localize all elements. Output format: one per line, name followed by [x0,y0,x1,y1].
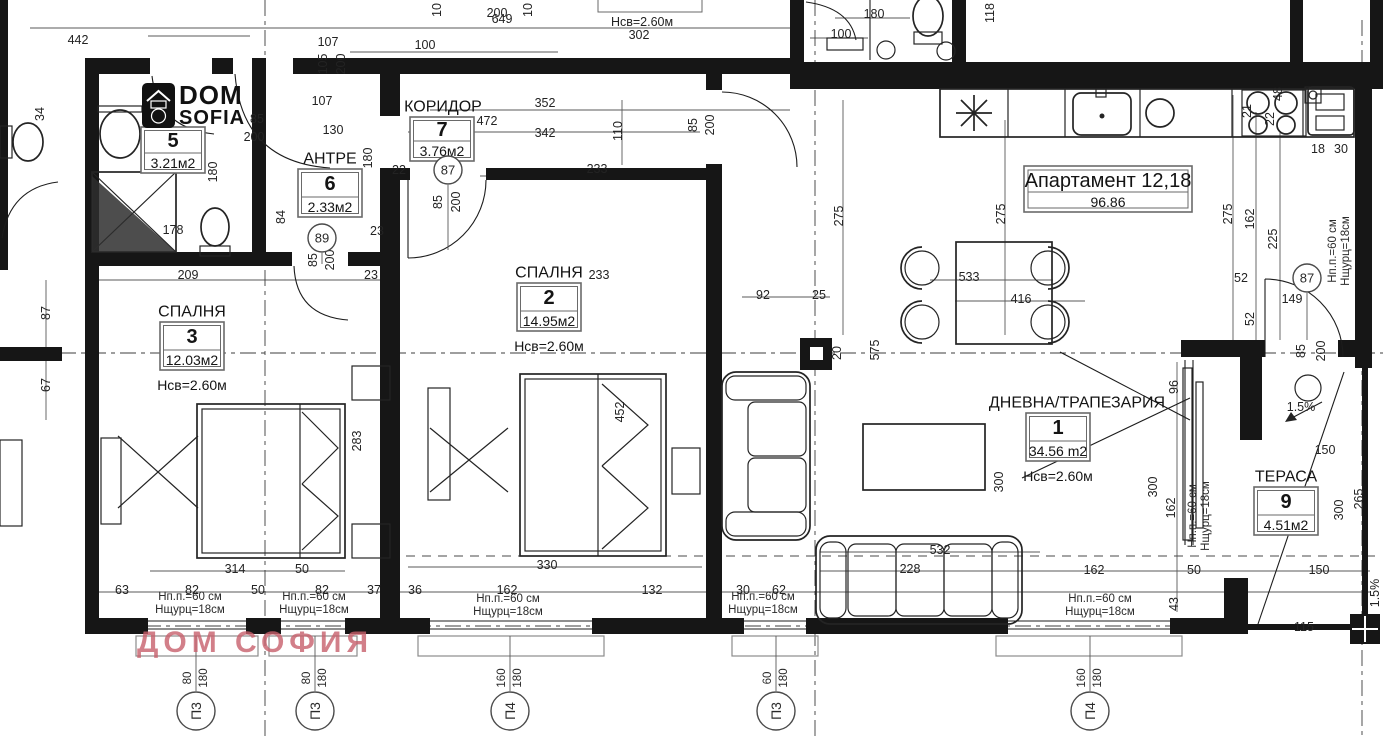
bedroom3-door-arc [294,266,348,320]
sill-label: Нп.п.=60 смНщурц=18см [1327,216,1352,286]
door-marker-number: 87 [1300,271,1314,286]
sill-label-line1: Нп.п.=60 см [731,591,795,603]
dimension-text: 84 [274,210,288,224]
dimension-text: 110 [611,121,625,141]
dimension-text: 132 [642,583,663,597]
dimension-text: 85 [306,253,320,267]
dimension-text: 200 [703,115,717,136]
dimension-text: 50 [295,562,309,576]
window-marker-label: П4 [502,702,518,720]
dimension-text: 118 [983,3,997,23]
sill-label-line2: Нщурц=18см [728,604,798,616]
dimension-text: 442 [68,33,89,47]
room-name: КОРИДОР [404,99,482,116]
wardrobe [428,388,450,500]
dimension-text: 275 [994,204,1008,225]
kitchen-counter [940,87,1354,137]
door-marker-number: 89 [315,231,329,246]
loveseat [722,372,810,540]
dimension-text: 330 [537,558,558,572]
dimension-text: 85 [686,118,700,132]
room-label-6: 62.33м2АНТРЕ [298,151,362,218]
sill-label: Нп.п.=60 смНщурц=18см [473,593,543,618]
dimension-text: 300 [1332,500,1346,521]
dimension-text: 107 [318,35,339,49]
door-marker: 87 [434,156,462,184]
dimension-text: 105 [316,54,330,75]
dining-chair [901,301,939,343]
window-width: 160 [1076,668,1088,687]
window-height: 180 [198,668,210,687]
dining-chair [1031,301,1069,343]
room-label-9: 94.51м2ТЕРАСА [1254,469,1318,536]
dimension-text: 43 [1167,597,1181,611]
dimension-text: 85 [1294,344,1308,358]
dimension-text: 352 [535,96,556,110]
dimension-text: 178 [163,223,184,237]
kitchen-sink [1073,89,1131,135]
room-label-7: 73.76м2КОРИДОР [404,99,482,162]
dimension-text: 67 [39,378,53,392]
dimension-text: 36 [408,583,422,597]
neighbor-cabinet [0,440,22,526]
logo-text-dom: DOM [179,80,243,110]
bath-sink [98,106,142,158]
sill-label-line1: Нп.п.=60 см [1068,593,1132,605]
dimension-text: 533 [959,270,980,284]
room-area: 12.03м2 [166,352,219,368]
dimension-text: 150 [1315,443,1336,457]
dimension-text: 162 [1243,209,1257,230]
room-number: 1 [1052,417,1063,439]
dining-chairs [901,247,1069,343]
window-marker-label: П3 [188,702,204,720]
oven-appliance [1305,87,1354,135]
dimension-text: 107 [312,94,333,108]
sill-label: Нп.п.=60 смНщурц=18см [728,591,798,616]
room-name: СПАЛНЯ [158,304,226,321]
room-ceiling-height: Нсв=2.60м [514,338,584,354]
dimension-text: 200 [1314,341,1328,362]
room-area: 3.21м2 [151,155,196,171]
sill-label-line2: Нщурц=18см [155,604,225,616]
logo: DOM SOFIA [142,80,245,129]
dimension-text: 302 [629,28,650,42]
sill-label-line2: Нщурц=18см [279,604,349,616]
window-marker-label: П4 [1082,702,1098,720]
dimension-text: 342 [535,126,556,140]
dimension-text: 472 [477,114,498,128]
dimension-text: 92 [756,288,770,302]
dimension-text: 22 [1263,112,1277,126]
room-name: СПАЛНЯ [515,265,583,282]
sill-label: Нп.п.=60 смНщурц=18см [155,591,225,616]
sill-label-line2: Нщурц=18см [1065,606,1135,618]
nightstand [672,448,700,494]
dimension-text: 150 [1309,563,1330,577]
dimension-text: 225 [1266,229,1280,250]
window-height: 180 [317,668,329,687]
dimension-text: 96 [1167,380,1181,394]
dimension-text: 85 [250,112,264,126]
room-number: 2 [543,287,554,309]
window-height: 180 [1092,668,1104,687]
dimension-text: 50 [1187,563,1201,577]
room-name: ДНЕВНА/ТРАПЕЗАРИЯ [989,395,1165,412]
room-number: 9 [1280,491,1291,513]
dimension-text: 149 [1282,292,1303,306]
dimension-text: 180 [206,162,220,183]
room-area: 2.33м2 [308,199,353,215]
window-marker-П3: П360180 [757,636,795,730]
dimension-text: 63 [115,583,129,597]
sill-label: Нп.п.=60 смНщурц=18см [1065,593,1135,618]
window-marker-П4: П4160180 [1071,636,1109,730]
dresser [101,438,121,524]
dining-table [956,242,1052,344]
dimension-text: 233 [589,268,610,282]
sill-label: Нп.п.=60 смНщурц=18см [1187,481,1212,551]
dimension-text: 100 [831,27,852,41]
dimension-text: 200 [334,54,348,75]
dimension-text: 52 [1243,312,1257,326]
slope-symbol [1285,375,1322,422]
window-width: 160 [496,668,508,687]
dimension-text: 22 [392,163,406,177]
room-name: ТЕРАСА [1255,469,1318,486]
dimension-text: 10 [521,3,535,17]
dimension-text: 18 [1311,142,1325,156]
dimension-text: 283 [350,431,364,452]
sill-label-line2: Нщурц=18см [1200,481,1212,551]
dimension-text: 115 [1294,620,1314,634]
watermark-text: ДОМ СОФИЯ [137,626,373,659]
sill-label-line2: Нщурц=18см [473,606,543,618]
dimension-text: 265 [1352,489,1366,510]
dimension-text: 52 [1234,271,1248,285]
window-marker-label: П3 [768,702,784,720]
sill-label-line1: Нп.п.=60 см [476,593,540,605]
window-height: 180 [512,668,524,687]
toilet [200,208,230,256]
dimension-text: 25 [812,288,826,302]
window-width: 80 [182,672,194,685]
coffee-table [863,424,985,490]
sill-label-line1: Нп.п.=60 см [282,591,346,603]
wardrobe-symbol [118,436,198,508]
logo-text-sofia: SOFIA [179,107,245,129]
dimension-text: 162 [1164,498,1178,519]
room-number: 7 [436,119,447,141]
sill-label-line2: Нщурц=18см [1340,216,1352,286]
dimension-text: 200 [244,130,265,144]
dimension-text: 228 [900,562,921,576]
room-area: 34.56 m2 [1029,443,1088,459]
dimension-text: 50 [251,583,265,597]
room-label-1: 134.56 m2ДНЕВНА/ТРАПЕЗАРИЯНсв=2.60м [989,395,1165,485]
sill-label-line1: Нп.п.=60 см [1327,219,1339,283]
sill-label-line1: Нп.п.=60 см [158,591,222,603]
dimension-text: 85 [431,195,445,209]
room-number: 3 [186,326,197,348]
dining-chair [1031,247,1069,289]
cooktop-circle [1146,99,1174,127]
door-marker: 89 [308,224,336,252]
dimension-text: 37 [367,583,381,597]
wardrobe-symbol [430,428,508,492]
dimension-text: 48 [1271,87,1285,101]
window-marker-label: П3 [307,702,323,720]
apartment-area: 96.86 [1090,194,1125,210]
room-area: 14.95м2 [523,313,576,329]
dimension-text: 21 [1240,104,1254,118]
dimension-text: 452 [613,402,627,423]
dimension-text: 275 [1221,204,1235,225]
shower [92,172,176,252]
sill-label-line1: Нп.п.=60 см [1187,484,1199,548]
sill-label: Нп.п.=60 смНщурц=18см [279,591,349,616]
dimension-text: 209 [178,268,199,282]
room-ceiling-height: Нсв=2.60м [1023,468,1093,484]
window-width: 80 [301,672,313,685]
room-label-5: 53.21м2 [141,127,205,173]
dimension-text: 162 [1084,563,1105,577]
dimension-text: 200 [323,250,337,271]
apartment-label: Апартамент 12,18 96.86 [1024,166,1192,212]
dimension-text: 200 [449,192,463,213]
dimension-text: 180 [361,148,375,169]
room-labels: 134.56 m2ДНЕВНА/ТРАПЕЗАРИЯНсв=2.60м214.9… [141,99,1318,536]
dimension-text: Нсв=2.60м [611,15,673,29]
dimension-text: 300 [992,472,1006,493]
dimension-text: 30 [1334,142,1348,156]
dimension-text: 87 [39,306,53,320]
room-label-3: 312.03м2СПАЛНЯНсв=2.60м [157,304,227,394]
bed-bedroom3 [197,404,345,558]
dimension-text: 275 [832,206,846,227]
dimension-text: 34 [33,107,47,121]
dimension-text: 233 [587,162,608,176]
dimension-text: 1.5% [1287,400,1316,414]
window-marker-П4: П4160180 [491,636,529,730]
dimension-text: 300 [1146,477,1160,498]
apartment-title: Апартамент 12,18 [1025,170,1192,192]
bedroom2-door-arc [408,180,486,258]
dimension-text: 575 [868,340,882,361]
room-ceiling-height: Нсв=2.60м [157,377,227,393]
door-marker-number: 87 [441,163,455,178]
living-door-arc [722,92,797,167]
dimension-text: 200 [487,6,508,20]
dimension-text: 23 [370,224,384,238]
dimension-text: 20 [830,346,844,360]
boiler-symbol [956,95,992,131]
dimension-text: 10 [430,3,444,17]
dimension-text: 416 [1011,292,1032,306]
dimension-text: 130 [323,123,344,137]
sofa [816,536,1022,624]
dimension-text: 100 [415,38,436,52]
cut-label-box [598,0,702,12]
neighbor-door-arc [2,182,58,238]
door-marker: 87 [1293,264,1321,292]
bed-bedroom2 [520,374,666,556]
dining-chair [901,247,939,289]
dimension-text: 180 [864,7,885,21]
dimension-text: 532 [930,543,951,557]
window-height: 180 [778,668,790,687]
room-number: 5 [167,130,178,152]
room-number: 6 [324,173,335,195]
room-name: АНТРЕ [303,151,356,168]
window-width: 60 [762,672,774,685]
floor-plan: Апартамент 12,18 96.86 134.56 m2ДНЕВНА/Т… [0,0,1383,740]
floor-plan-drawing: Апартамент 12,18 96.86 134.56 m2ДНЕВНА/Т… [0,0,1383,740]
room-area: 4.51м2 [1264,517,1309,533]
dimension-text: 1.5% [1368,579,1382,608]
dimension-text: 314 [225,562,246,576]
dimension-text: 23 [364,268,378,282]
room-label-2: 214.95м2СПАЛНЯНсв=2.60м [514,265,584,355]
